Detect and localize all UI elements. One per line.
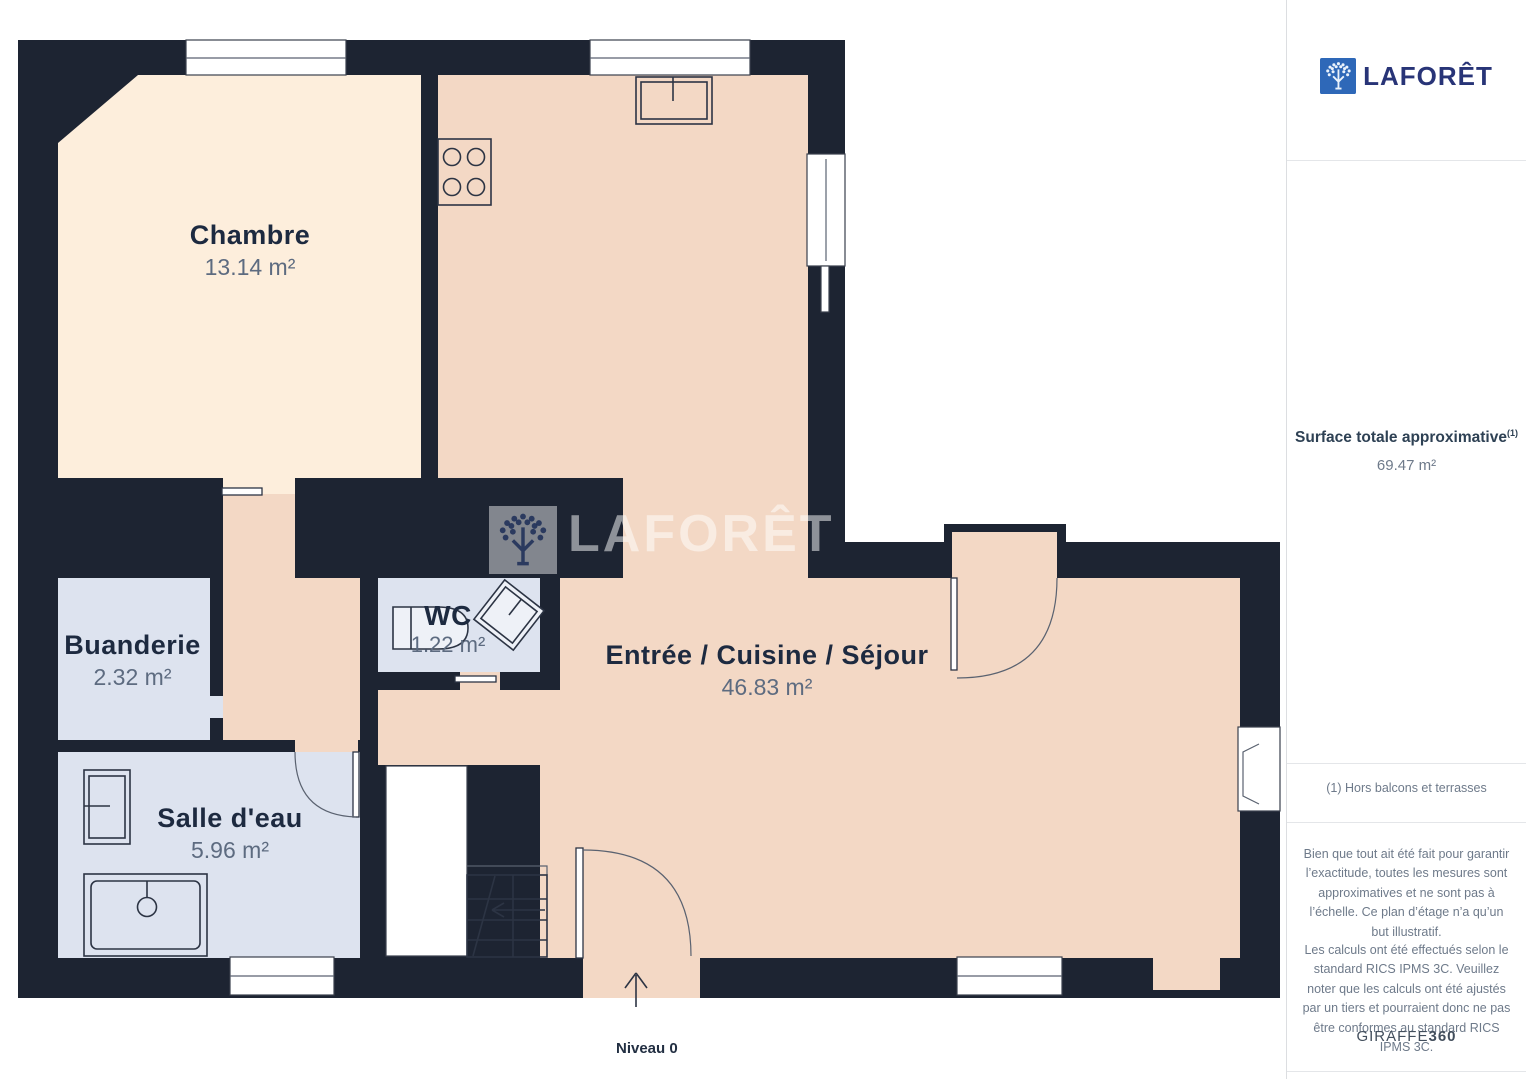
- surface-total-block: Surface totale approximative(1) 69.47 m²: [1287, 428, 1526, 474]
- window-salle-eau-bottom: [230, 957, 334, 995]
- buanderie-door-gap: [210, 696, 223, 718]
- disclaimer-accuracy: Bien que tout ait été fait pour garantir…: [1300, 845, 1513, 942]
- brand-watermark-text: LAFORÊT: [568, 504, 835, 564]
- credit-brand: GIRAFFE: [1356, 1028, 1428, 1045]
- room-floor-buanderie: [58, 578, 210, 740]
- toilet: [393, 607, 468, 649]
- footnote-text: (1) Hors balcons et terrasses: [1287, 781, 1526, 795]
- window-chambre: [186, 40, 346, 75]
- hallway-floor: [378, 690, 560, 765]
- floor-plan-page: LAFORÊT Chambre 13.14 m² WC 1.22 m² Entr…: [0, 0, 1526, 1079]
- laforet-logo: LAFORÊT: [1287, 58, 1526, 94]
- credit-suffix: 360: [1428, 1028, 1456, 1045]
- wall-recess: [1153, 958, 1220, 990]
- divider: [1287, 822, 1526, 823]
- surface-total-title: Surface totale approximative(1): [1287, 428, 1526, 447]
- laforet-wordmark: LAFORÊT: [1363, 61, 1493, 92]
- footnote-marker: (1): [1507, 428, 1518, 438]
- entry-alcove: [952, 532, 1057, 578]
- brand-watermark-icon: [489, 506, 557, 574]
- room-floor-sejour: [560, 578, 1240, 958]
- room-floor-salle-eau: [58, 752, 360, 958]
- surface-title-text: Surface totale approximative: [1295, 429, 1507, 446]
- wc-sliding-door: [455, 676, 496, 682]
- giraffe360-credit: GIRAFFE360: [1287, 1028, 1526, 1045]
- chambre-sliding-door: [222, 488, 262, 495]
- window-sejour-bottom: [957, 957, 1062, 995]
- info-sidebar: LAFORÊT Surface totale approximative(1) …: [1286, 0, 1526, 1079]
- room-floor-chambre: [58, 75, 421, 494]
- entrance-gap: [583, 958, 700, 998]
- level-label: Niveau 0: [616, 1040, 678, 1057]
- divider: [1287, 1071, 1526, 1072]
- laforet-tree-icon: [1320, 58, 1356, 94]
- window-sejour-right: [1238, 727, 1280, 811]
- divider: [1287, 160, 1526, 161]
- room-floor-kitchen: [438, 75, 808, 478]
- floor-plan-canvas: LAFORÊT Chambre 13.14 m² WC 1.22 m² Entr…: [0, 0, 1286, 1079]
- window-kitchen-top: [590, 40, 750, 75]
- divider: [1287, 763, 1526, 764]
- surface-total-value: 69.47 m²: [1287, 457, 1526, 474]
- corridor-floor: [223, 494, 295, 578]
